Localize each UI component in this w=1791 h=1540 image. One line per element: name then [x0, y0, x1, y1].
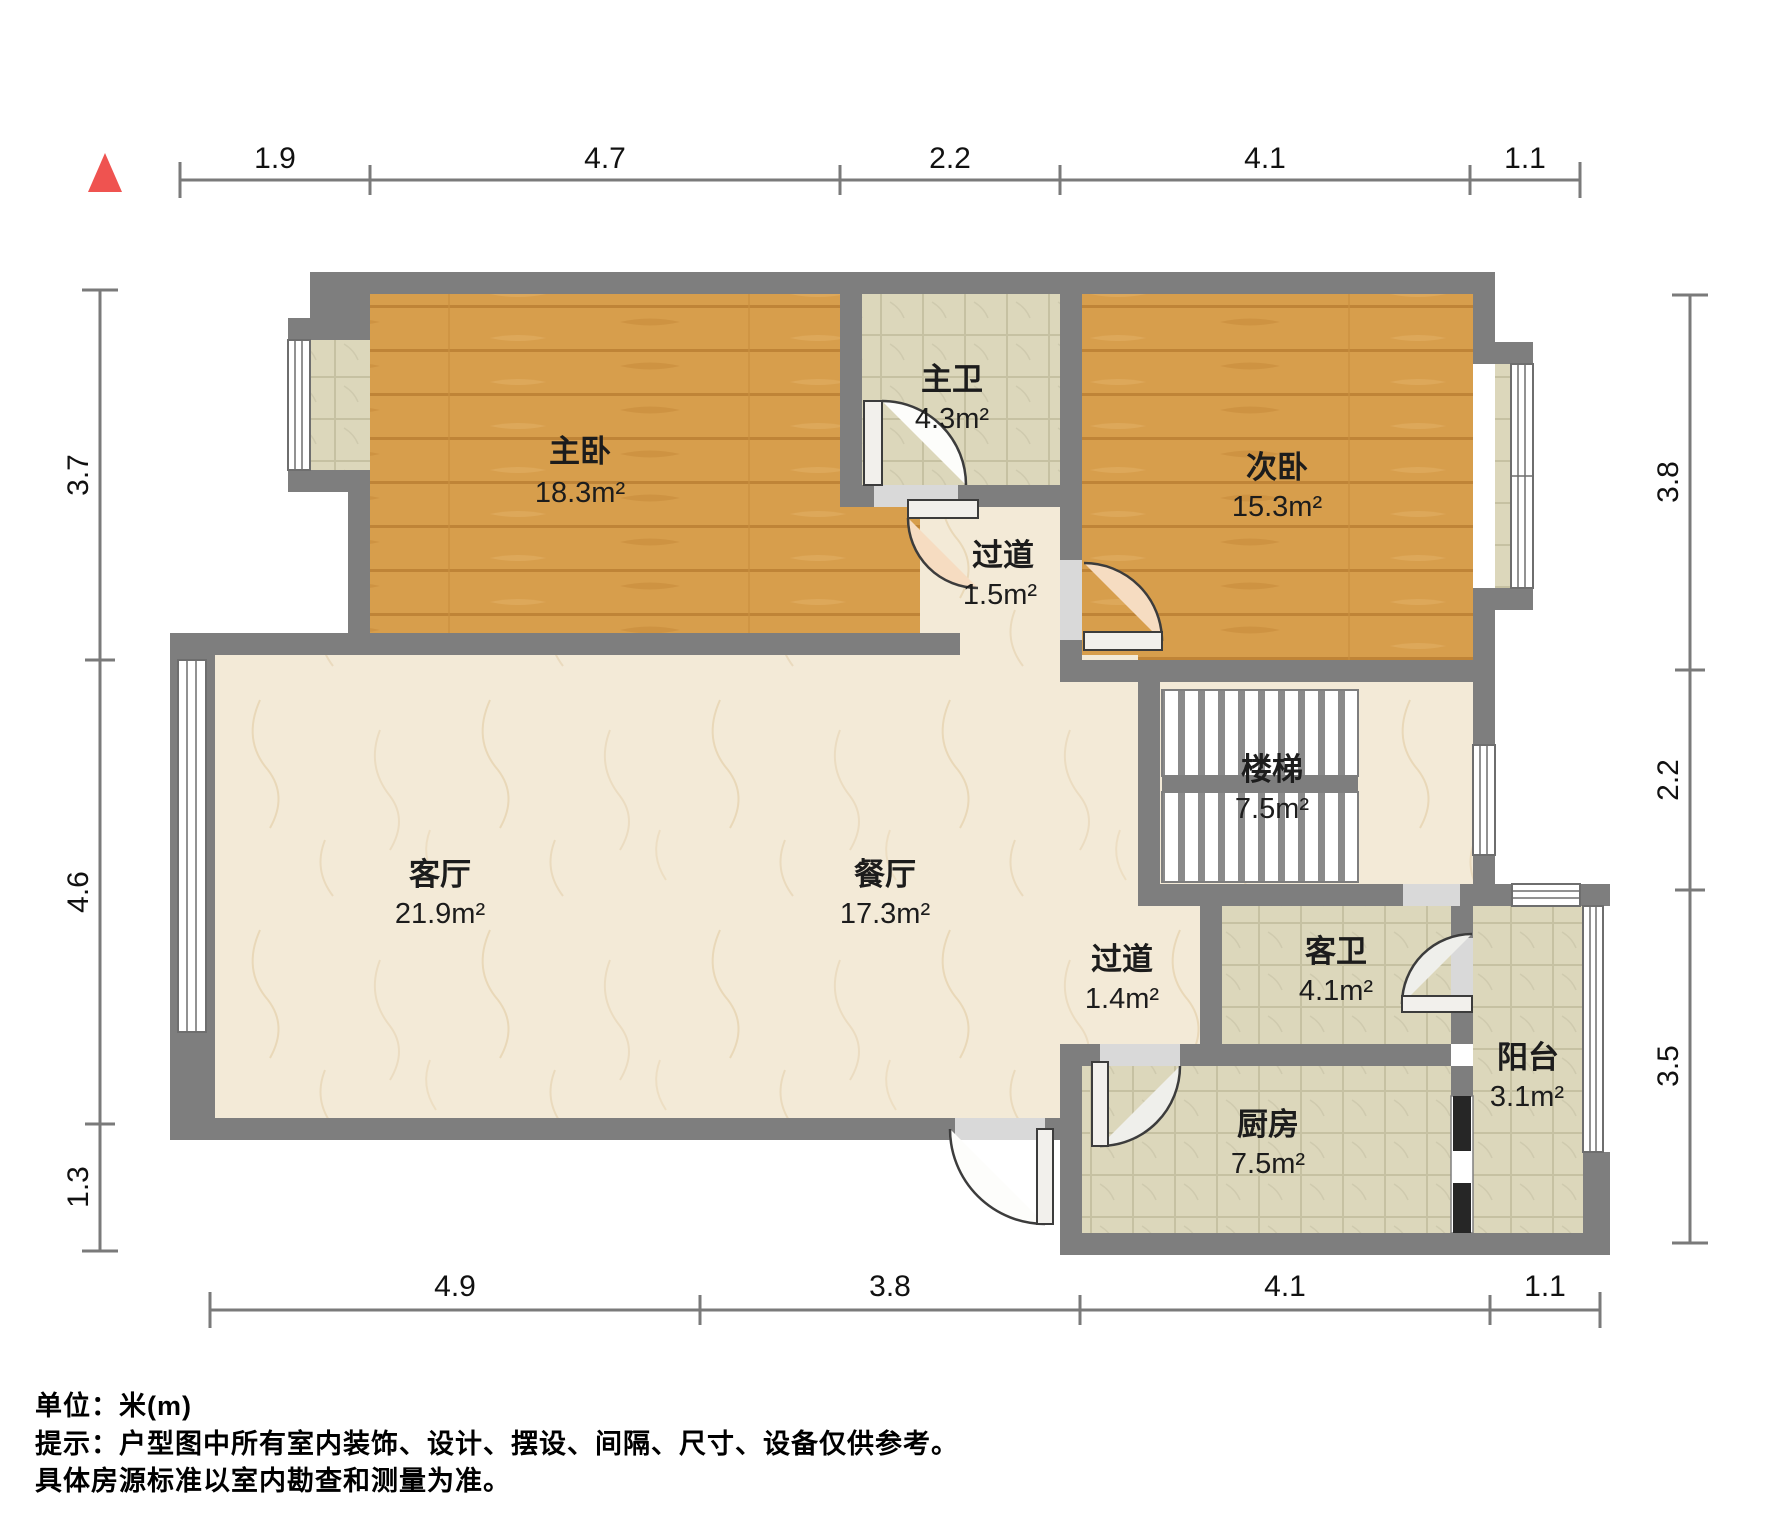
dim-bottom-3: 4.1: [1264, 1270, 1306, 1303]
svg-text:次卧: 次卧: [1246, 450, 1308, 485]
stairwell-window: [1473, 745, 1495, 855]
svg-text:主卫: 主卫: [921, 362, 983, 397]
bay-sill-left: [310, 340, 370, 470]
disclaimer-line-2: 具体房源标准以室内勘查和测量为准。: [35, 1459, 511, 1498]
master-bedroom-bay-window: [288, 340, 310, 470]
svg-text:7.5m²: 7.5m²: [1231, 1148, 1305, 1180]
svg-text:15.3m²: 15.3m²: [1232, 491, 1323, 523]
dim-bottom-1: 4.9: [434, 1270, 476, 1303]
balcony-top-window: [1512, 884, 1580, 906]
dim-top-3: 2.2: [929, 142, 971, 175]
svg-text:7.5m²: 7.5m²: [1235, 793, 1309, 825]
svg-text:楼梯: 楼梯: [1241, 752, 1303, 787]
svg-text:厨房: 厨房: [1237, 1107, 1299, 1142]
living-room-window: [178, 660, 206, 1032]
svg-text:过道: 过道: [972, 538, 1034, 573]
north-arrow-icon: [88, 153, 122, 192]
dim-top-4: 4.1: [1244, 142, 1286, 175]
dim-bottom-4: 1.1: [1524, 1270, 1566, 1303]
balcony-right-window: [1583, 906, 1603, 1152]
svg-text:主卧: 主卧: [549, 434, 611, 469]
dim-right-1: 3.8: [1652, 461, 1685, 503]
bay-sill-right: [1495, 364, 1511, 588]
balcony-sliding-door: [1451, 1096, 1473, 1233]
floor-fills: [215, 294, 1583, 1233]
svg-text:4.3m²: 4.3m²: [915, 403, 989, 435]
dim-right-2: 2.2: [1652, 759, 1685, 801]
dim-left-3: 1.3: [62, 1166, 95, 1208]
entry-door: [950, 1129, 1053, 1224]
svg-text:阳台: 阳台: [1497, 1040, 1559, 1075]
dimension-left: 3.7 4.6 1.3: [62, 290, 118, 1251]
svg-text:过道: 过道: [1091, 942, 1153, 977]
svg-text:客卫: 客卫: [1305, 934, 1367, 969]
svg-text:17.3m²: 17.3m²: [840, 898, 931, 930]
floorplan-drawing: 1.9 4.7 2.2 4.1 1.1 4.9 3.8 4.1 1.1 3.7 …: [0, 0, 1791, 1540]
dim-left-1: 3.7: [62, 454, 95, 496]
unit-note: 单位：米(m): [35, 1384, 192, 1423]
svg-text:18.3m²: 18.3m²: [535, 477, 626, 509]
dim-right-3: 3.5: [1652, 1045, 1685, 1087]
floorplan-page: 1.9 4.7 2.2 4.1 1.1 4.9 3.8 4.1 1.1 3.7 …: [0, 0, 1791, 1540]
svg-text:1.5m²: 1.5m²: [963, 579, 1037, 611]
svg-text:4.1m²: 4.1m²: [1299, 975, 1373, 1007]
svg-text:客厅: 客厅: [409, 857, 471, 892]
dim-top-5: 1.1: [1504, 142, 1546, 175]
dimension-bottom: 4.9 3.8 4.1 1.1: [210, 1270, 1600, 1328]
svg-text:3.1m²: 3.1m²: [1490, 1081, 1564, 1113]
dim-left-2: 4.6: [62, 871, 95, 913]
svg-text:餐厅: 餐厅: [854, 857, 916, 892]
svg-text:1.4m²: 1.4m²: [1085, 983, 1159, 1015]
dimension-top: 1.9 4.7 2.2 4.1 1.1: [180, 142, 1580, 198]
room-living-dining-floor: [215, 655, 1138, 1118]
dimension-right: 3.8 2.2 3.5: [1652, 295, 1708, 1243]
dim-top-2: 4.7: [584, 142, 626, 175]
dim-bottom-2: 3.8: [869, 1270, 911, 1303]
second-bedroom-bay-window: [1511, 364, 1533, 588]
svg-text:21.9m²: 21.9m²: [395, 898, 486, 930]
disclaimer-line-1: 提示：户型图中所有室内装饰、设计、摆设、间隔、尺寸、设备仅供参考。: [35, 1422, 959, 1461]
dim-top-1: 1.9: [254, 142, 296, 175]
